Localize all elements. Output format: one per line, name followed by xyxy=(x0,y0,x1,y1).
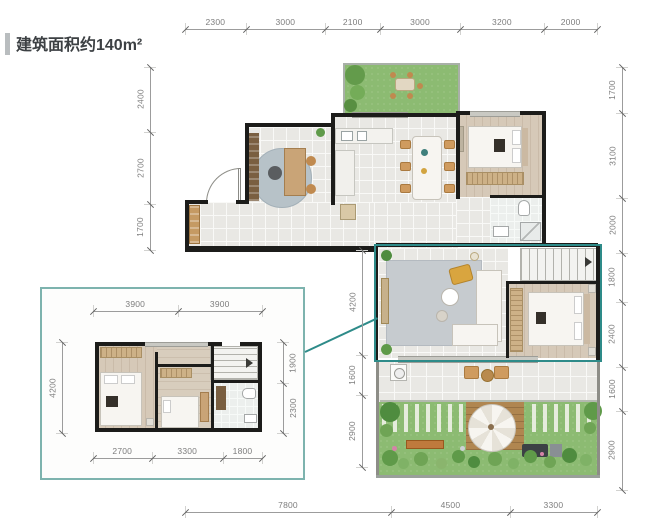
garden-seat xyxy=(390,72,396,78)
table-decor xyxy=(421,168,427,174)
dining-chair xyxy=(444,162,455,171)
wall xyxy=(258,342,262,432)
kitchen-sink xyxy=(357,131,367,141)
dimension-label: 4200 xyxy=(347,250,357,355)
stool xyxy=(306,184,316,194)
plant-icon xyxy=(316,128,325,137)
shrub-icon xyxy=(524,450,537,463)
flower-icon xyxy=(460,446,465,451)
shrub-icon xyxy=(382,450,398,466)
wall xyxy=(456,113,460,199)
inset-stairs-arrow xyxy=(246,358,253,368)
garden-seat xyxy=(407,72,413,78)
bbq-side-table xyxy=(550,444,562,457)
bathroom-sink xyxy=(244,414,257,423)
wall xyxy=(236,200,247,204)
dimension-label: 1700 xyxy=(607,67,617,113)
shelf xyxy=(200,392,209,422)
wardrobe xyxy=(100,347,142,358)
dimension-label: 2400 xyxy=(607,302,617,367)
garden-seat xyxy=(407,93,413,99)
window-sill xyxy=(145,342,208,347)
wall xyxy=(95,428,262,432)
table-decor xyxy=(421,149,428,156)
dimension-label: 3000 xyxy=(246,17,325,27)
dining-chair xyxy=(400,184,411,193)
front-strip-floor xyxy=(374,202,458,248)
wall xyxy=(155,364,213,367)
shrub-icon xyxy=(488,452,502,466)
bookcase xyxy=(249,133,259,201)
entry-door-arc xyxy=(206,168,241,203)
dimension-label: 1600 xyxy=(607,367,617,411)
pillow xyxy=(104,375,118,384)
shrub-icon xyxy=(580,454,592,466)
garden-table xyxy=(395,78,415,91)
shrub-icon xyxy=(380,402,400,422)
dining-chair xyxy=(444,184,455,193)
headboard xyxy=(522,128,528,166)
entry-door-leaf xyxy=(238,168,241,203)
wardrobe xyxy=(466,172,524,185)
pillow xyxy=(121,375,135,384)
bathroom-vanity xyxy=(216,386,226,410)
dining-chair xyxy=(444,140,455,149)
shrub-icon xyxy=(414,452,428,466)
flower-icon xyxy=(392,446,397,451)
parapet-wall xyxy=(376,360,379,478)
dining-chair xyxy=(400,162,411,171)
dimension-label: 3300 xyxy=(510,500,597,510)
shrub-icon xyxy=(380,424,393,437)
toilet xyxy=(518,200,530,216)
dimension-label: 3200 xyxy=(460,17,545,27)
title-accent-bar xyxy=(5,33,10,55)
kitchen-island xyxy=(335,150,355,196)
dimension-label: 3000 xyxy=(380,17,459,27)
shower xyxy=(520,222,541,241)
shrub-icon xyxy=(452,450,465,463)
parasol-pole xyxy=(488,424,494,430)
washer-drum xyxy=(394,368,405,379)
corridor-floor xyxy=(456,197,492,246)
window-sill xyxy=(470,111,520,117)
bed-throw xyxy=(494,139,505,152)
wall xyxy=(185,246,376,252)
dimension-label: 7800 xyxy=(185,500,391,510)
wall xyxy=(245,123,249,204)
dimension-label: 2900 xyxy=(607,411,617,490)
wall xyxy=(95,342,145,346)
dimension-label: 2000 xyxy=(607,198,617,253)
flower-icon xyxy=(540,452,544,456)
shrub-icon xyxy=(345,65,365,85)
wardrobe xyxy=(160,368,192,378)
bathroom-sink xyxy=(493,226,509,237)
kitchen-cabinet xyxy=(340,204,356,220)
dimension-label: 2900 xyxy=(347,395,357,467)
wall xyxy=(490,195,542,198)
stool xyxy=(306,156,316,166)
shrub-icon xyxy=(468,456,480,468)
parapet-wall xyxy=(597,360,600,478)
dimension-label: 1800 xyxy=(607,253,617,302)
wall xyxy=(185,200,189,250)
garden-bench xyxy=(406,440,444,449)
dimension-label: 1600 xyxy=(347,355,357,395)
dimension-label: 1700 xyxy=(135,204,145,250)
shrub-icon xyxy=(544,456,556,468)
dimension-label: 2700 xyxy=(135,132,145,205)
patio-table xyxy=(481,369,494,382)
dining-table xyxy=(412,136,442,200)
shrub-icon xyxy=(398,458,409,469)
page-title: 建筑面积约140m² xyxy=(16,31,142,55)
wall xyxy=(331,115,335,205)
office-chair xyxy=(268,166,282,180)
patio-chair xyxy=(464,366,479,379)
patio-chair xyxy=(494,366,509,379)
shrub-icon xyxy=(562,448,577,463)
dimension-label: 2400 xyxy=(135,67,145,132)
wall xyxy=(211,346,214,430)
highlight-region-outline xyxy=(374,244,602,362)
pillow xyxy=(512,148,521,163)
wall xyxy=(211,380,260,383)
dimension-label: 4500 xyxy=(391,500,510,510)
dining-chair xyxy=(400,140,411,149)
shrub-icon xyxy=(350,85,365,100)
pillow xyxy=(163,400,171,413)
garden-seat xyxy=(417,83,423,89)
parapet-wall xyxy=(376,475,600,478)
pillow xyxy=(512,130,521,145)
toilet xyxy=(242,388,256,399)
shoe-cabinet xyxy=(189,205,200,244)
desk xyxy=(284,148,306,196)
wall xyxy=(245,123,335,127)
inset-leader-line xyxy=(305,317,378,353)
kitchen-sink xyxy=(341,131,353,141)
shrub-icon xyxy=(584,422,596,434)
bed-throw xyxy=(106,396,118,407)
shrub-icon xyxy=(508,458,519,469)
shrub-icon xyxy=(436,458,447,469)
wall xyxy=(95,342,99,432)
dimension-label: 3100 xyxy=(607,113,617,198)
garden-seat xyxy=(390,93,396,99)
wall xyxy=(331,113,460,117)
dimension-label: 2100 xyxy=(325,17,380,27)
shrub-icon xyxy=(344,99,357,112)
dimension-label: 2000 xyxy=(544,17,597,27)
nightstand xyxy=(146,418,154,426)
wall xyxy=(542,113,546,247)
floor-plan-image: 建筑面积约140m² xyxy=(0,0,662,529)
dimension-label: 2300 xyxy=(185,17,246,27)
